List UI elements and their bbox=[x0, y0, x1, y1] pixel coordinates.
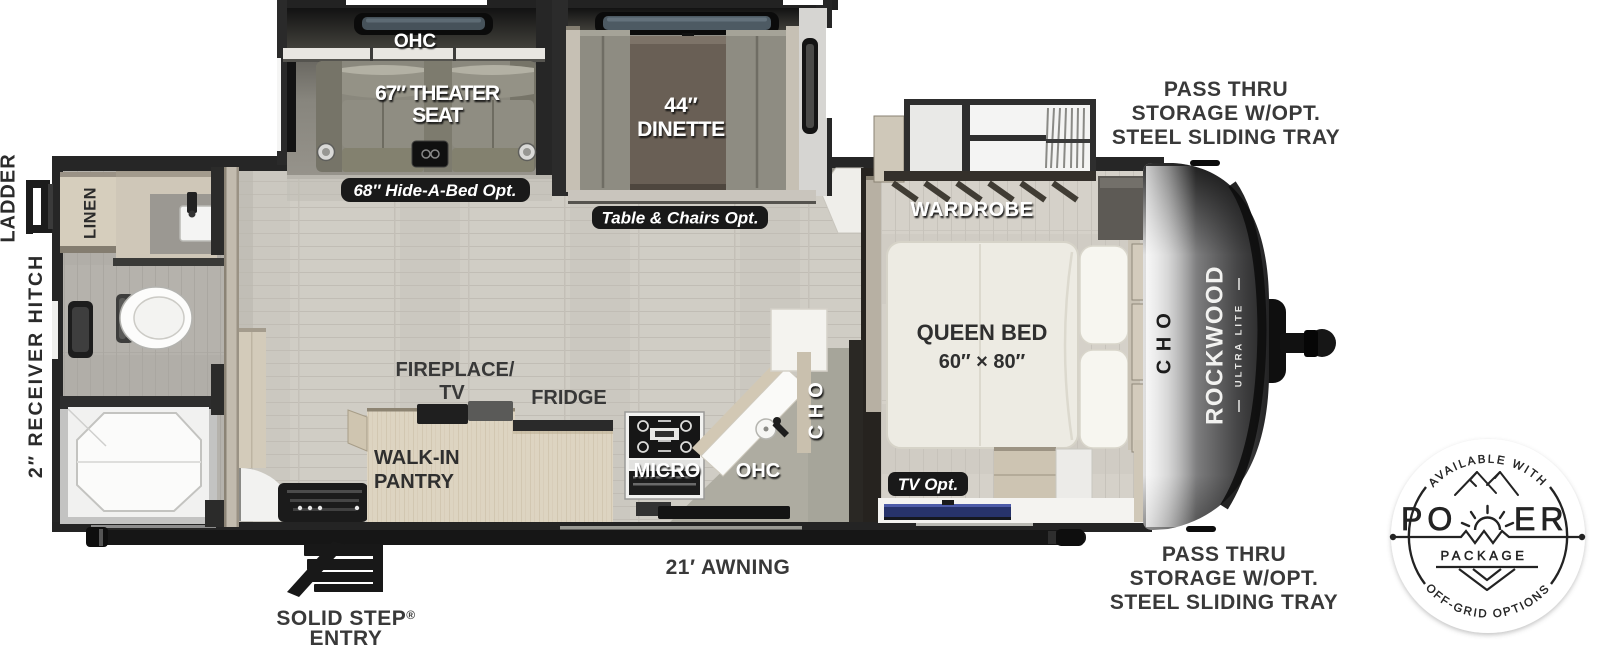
svg-text:FRIDGE: FRIDGE bbox=[531, 387, 607, 409]
svg-text:PO: PO bbox=[1401, 501, 1457, 537]
svg-text:STORAGE W/OPT.: STORAGE W/OPT. bbox=[1130, 567, 1319, 590]
svg-text:C: C bbox=[1153, 360, 1175, 374]
svg-text:PASS THRU: PASS THRU bbox=[1164, 78, 1288, 101]
svg-text:TV: TV bbox=[439, 382, 465, 404]
svg-text:ER: ER bbox=[1514, 501, 1568, 537]
svg-text:WARDROBE: WARDROBE bbox=[911, 199, 1034, 221]
svg-text:21′ AWNING: 21′ AWNING bbox=[666, 556, 791, 579]
svg-text:FIREPLACE/: FIREPLACE/ bbox=[396, 359, 515, 381]
svg-text:PANTRY: PANTRY bbox=[374, 471, 455, 493]
svg-text:2″ RECEIVER HITCH: 2″ RECEIVER HITCH bbox=[25, 254, 47, 478]
svg-text:H: H bbox=[805, 404, 827, 418]
svg-text:OHC: OHC bbox=[736, 460, 780, 482]
svg-text:QUEEN BED: QUEEN BED bbox=[917, 320, 1048, 345]
svg-text:44″: 44″ bbox=[664, 94, 697, 117]
svg-text:STEEL SLIDING TRAY: STEEL SLIDING TRAY bbox=[1112, 126, 1340, 149]
svg-text:ENTRY: ENTRY bbox=[310, 627, 383, 645]
svg-text:O: O bbox=[805, 382, 827, 398]
svg-text:O: O bbox=[1153, 313, 1175, 329]
svg-text:Table & Chairs Opt.: Table & Chairs Opt. bbox=[601, 209, 758, 228]
svg-text:SEAT: SEAT bbox=[412, 104, 463, 127]
svg-text:STEEL SLIDING TRAY: STEEL SLIDING TRAY bbox=[1110, 591, 1338, 614]
svg-text:DINETTE: DINETTE bbox=[637, 118, 725, 141]
svg-text:LINEN: LINEN bbox=[81, 187, 99, 239]
svg-text:OHC: OHC bbox=[394, 31, 437, 52]
svg-text:C: C bbox=[805, 425, 827, 439]
svg-text:WALK-IN: WALK-IN bbox=[374, 447, 460, 469]
svg-text:68″ Hide-A-Bed Opt.: 68″ Hide-A-Bed Opt. bbox=[353, 181, 516, 200]
svg-text:67″ THEATER: 67″ THEATER bbox=[375, 82, 500, 105]
svg-text:PACKAGE: PACKAGE bbox=[1440, 548, 1527, 563]
svg-text:ROCKWOOD: ROCKWOOD bbox=[1201, 265, 1228, 425]
svg-text:PASS THRU: PASS THRU bbox=[1162, 543, 1286, 566]
svg-text:TV Opt.: TV Opt. bbox=[898, 475, 958, 494]
svg-text:MICRO: MICRO bbox=[634, 460, 701, 482]
svg-text:LADDER: LADDER bbox=[0, 153, 19, 242]
svg-text:ULTRA LITE: ULTRA LITE bbox=[1234, 303, 1245, 387]
svg-text:60″ × 80″: 60″ × 80″ bbox=[939, 351, 1026, 373]
svg-text:H: H bbox=[1153, 337, 1175, 351]
svg-text:STORAGE W/OPT.: STORAGE W/OPT. bbox=[1132, 102, 1321, 125]
